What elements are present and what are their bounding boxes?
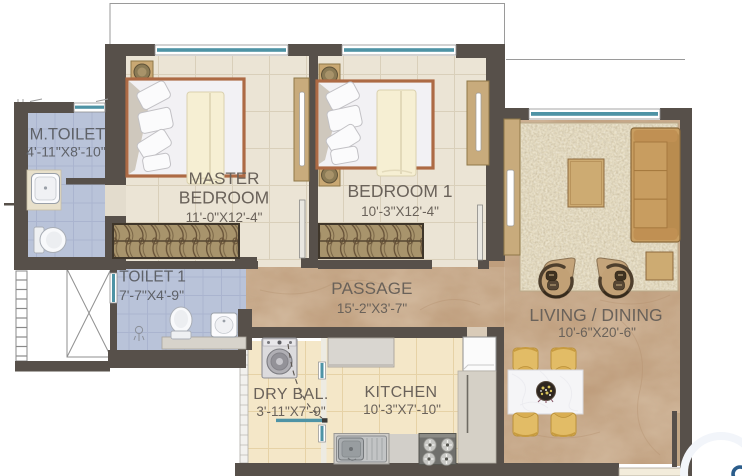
svg-text:M.TOILET: M.TOILET	[30, 126, 106, 144]
svg-text:10'-6"X20'-6": 10'-6"X20'-6"	[558, 325, 636, 340]
svg-text:10'-3"X7'-10": 10'-3"X7'-10"	[363, 402, 441, 417]
svg-text:LIVING / DINING: LIVING / DINING	[529, 305, 662, 325]
svg-text:7'-7"X4'-9": 7'-7"X4'-9"	[119, 287, 184, 303]
svg-text:MASTER: MASTER	[189, 169, 260, 188]
svg-text:3'-11"X7'-9": 3'-11"X7'-9"	[256, 404, 325, 419]
svg-text:PASSAGE: PASSAGE	[331, 279, 412, 298]
svg-text:15'-2"X3'-7": 15'-2"X3'-7"	[337, 301, 407, 316]
svg-text:DRY BAL.: DRY BAL.	[253, 386, 329, 403]
svg-text:TOILET 1: TOILET 1	[119, 269, 186, 286]
svg-text:BEDROOM 1: BEDROOM 1	[347, 181, 452, 201]
svg-text:11'-0"X12'-4": 11'-0"X12'-4"	[186, 210, 263, 225]
svg-text:BEDROOM: BEDROOM	[179, 188, 269, 208]
svg-text:KITCHEN: KITCHEN	[364, 384, 437, 401]
svg-text:10'-3"X12'-4": 10'-3"X12'-4"	[361, 204, 439, 219]
svg-text:4'-11"X8'-10": 4'-11"X8'-10"	[26, 144, 106, 160]
